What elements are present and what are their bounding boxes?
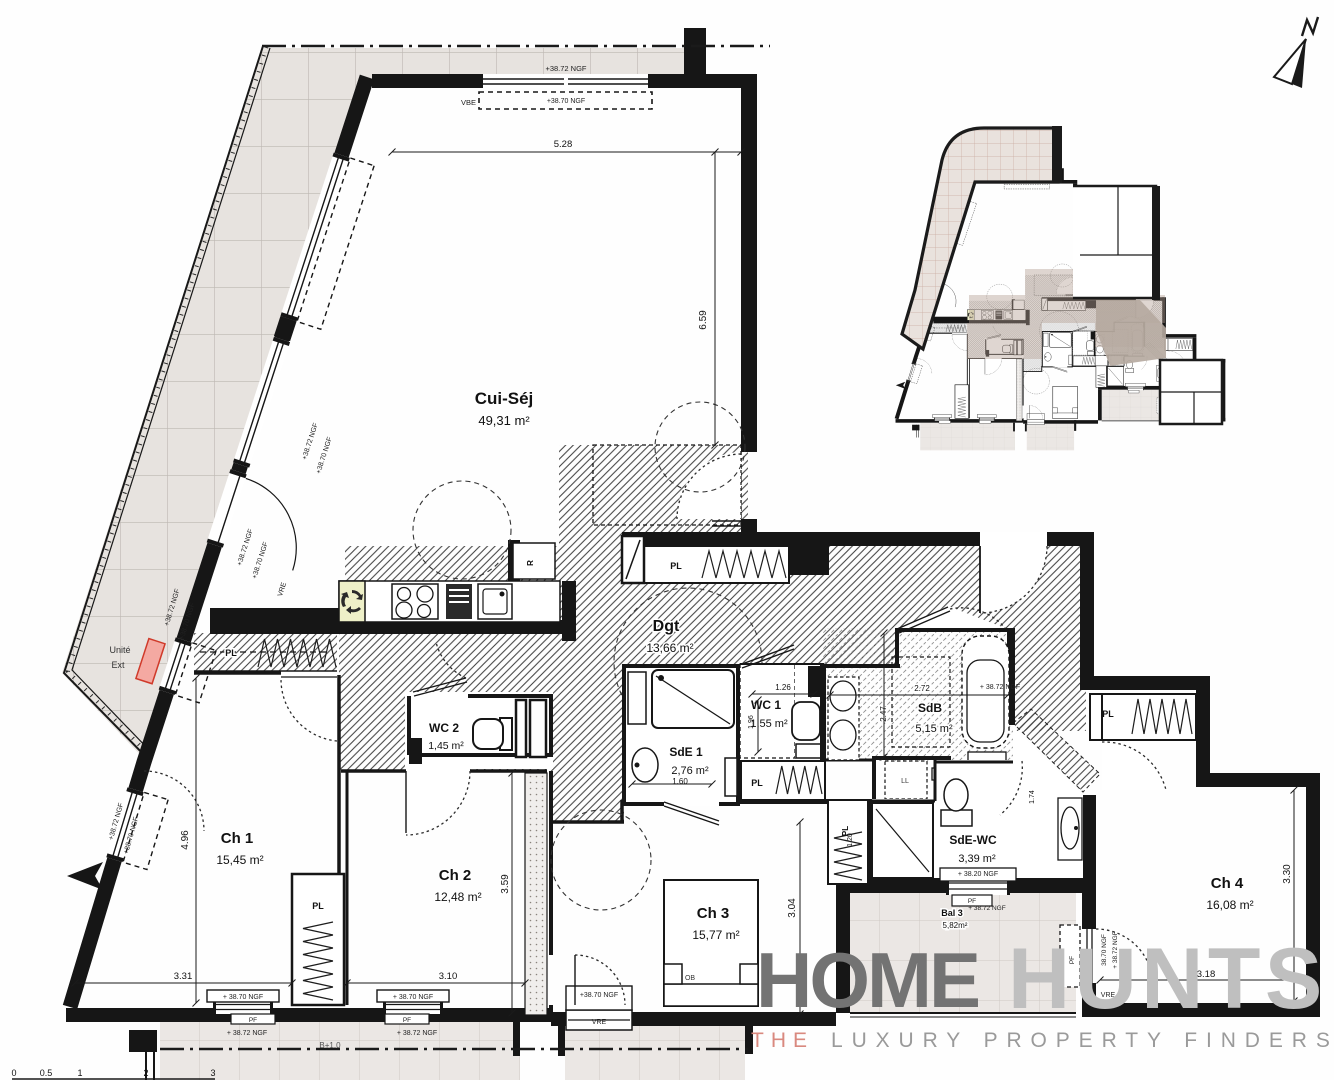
- svg-text:1.20: 1.20: [847, 833, 854, 847]
- svg-text:3.31: 3.31: [174, 971, 193, 982]
- svg-text:Ch 3: Ch 3: [697, 905, 730, 922]
- svg-text:1.60: 1.60: [672, 777, 688, 786]
- svg-text:PL: PL: [225, 648, 237, 658]
- svg-text:+ 38.70 NGF: + 38.70 NGF: [393, 994, 433, 1001]
- svg-text:13,66 m²: 13,66 m²: [646, 641, 693, 655]
- svg-text:R: R: [526, 560, 535, 566]
- svg-text:4.96: 4.96: [180, 830, 191, 850]
- svg-text:12,48 m²: 12,48 m²: [434, 890, 481, 904]
- svg-text:Unité: Unité: [109, 645, 130, 655]
- svg-text:PF: PF: [403, 1017, 411, 1024]
- svg-text:5.28: 5.28: [554, 139, 573, 150]
- svg-text:OB: OB: [685, 975, 695, 982]
- svg-text:SdB: SdB: [918, 701, 942, 715]
- svg-text:WC 2: WC 2: [429, 721, 459, 735]
- svg-text:PF: PF: [968, 898, 976, 905]
- svg-text:1: 1: [77, 1068, 82, 1078]
- svg-text:3,39 m²: 3,39 m²: [958, 853, 996, 865]
- svg-text:1.96: 1.96: [748, 715, 755, 729]
- svg-text:LUXURY PROPERTY FINDERS: LUXURY PROPERTY FINDERS: [831, 1029, 1334, 1052]
- svg-text:SdE 1: SdE 1: [669, 745, 703, 759]
- svg-text:1,55 m²: 1,55 m²: [750, 718, 788, 730]
- svg-text:15,45 m²: 15,45 m²: [216, 853, 263, 867]
- svg-text:15,77 m²: 15,77 m²: [692, 928, 739, 942]
- svg-text:PL: PL: [1102, 709, 1114, 719]
- svg-text:+38.72 NGF: +38.72 NGF: [545, 64, 586, 73]
- svg-text:HOME: HOME: [756, 936, 978, 1024]
- svg-text:Ch 2: Ch 2: [439, 867, 472, 884]
- svg-text:VRE: VRE: [592, 1019, 607, 1026]
- svg-text:1,45 m²: 1,45 m²: [428, 740, 464, 752]
- svg-text:PL: PL: [670, 561, 682, 571]
- svg-text:3.59: 3.59: [500, 874, 511, 894]
- svg-text:Ch 1: Ch 1: [221, 830, 254, 847]
- svg-text:+38.70 NGF: +38.70 NGF: [547, 98, 585, 105]
- svg-text:+ 38.70 NGF: + 38.70 NGF: [223, 994, 263, 1001]
- svg-text:5,82m²: 5,82m²: [943, 921, 968, 930]
- svg-text:Cui-Séj: Cui-Séj: [475, 389, 534, 408]
- svg-text:Ch 4: Ch 4: [1211, 875, 1244, 892]
- svg-text:+ 38.72 NGF: + 38.72 NGF: [980, 684, 1020, 691]
- svg-text:Ext: Ext: [111, 660, 125, 670]
- svg-text:6.59: 6.59: [698, 310, 709, 330]
- svg-text:5,15 m²: 5,15 m²: [915, 723, 953, 735]
- svg-text:3.10: 3.10: [439, 971, 458, 982]
- svg-text:2,76 m²: 2,76 m²: [671, 765, 709, 777]
- svg-text:PF: PF: [249, 1017, 257, 1024]
- svg-text:VBE: VBE: [461, 98, 476, 107]
- svg-text:1.26: 1.26: [775, 683, 791, 692]
- svg-text:16,08 m²: 16,08 m²: [1206, 898, 1253, 912]
- svg-text:+38.70 NGF: +38.70 NGF: [580, 992, 618, 999]
- svg-text:3: 3: [210, 1068, 215, 1078]
- svg-text:1.74: 1.74: [1029, 790, 1036, 804]
- svg-text:2.72: 2.72: [914, 684, 930, 693]
- svg-text:Dgt: Dgt: [653, 618, 680, 635]
- svg-text:2: 2: [143, 1068, 148, 1078]
- svg-text:SdE-WC: SdE-WC: [949, 833, 997, 847]
- svg-text:+ 38.20 NGF: + 38.20 NGF: [958, 871, 998, 878]
- svg-text:0.5: 0.5: [40, 1068, 53, 1078]
- svg-text:+ 38.72 NGF: + 38.72 NGF: [397, 1030, 437, 1037]
- svg-text:49,31 m²: 49,31 m²: [478, 413, 530, 428]
- svg-text:HUNTS: HUNTS: [1008, 931, 1327, 1027]
- svg-text:3.04: 3.04: [787, 898, 798, 918]
- svg-text:THE: THE: [751, 1029, 814, 1052]
- svg-text:+ 38.72 NGF: + 38.72 NGF: [227, 1030, 267, 1037]
- svg-text:0: 0: [11, 1068, 16, 1078]
- svg-text:Bal 3: Bal 3: [941, 908, 963, 918]
- svg-text:LL: LL: [901, 778, 909, 785]
- svg-text:PL: PL: [312, 901, 324, 911]
- svg-text:+ 38.72 NGF: + 38.72 NGF: [968, 905, 1005, 912]
- svg-text:PL: PL: [751, 778, 763, 788]
- svg-text:WC 1: WC 1: [751, 698, 781, 712]
- svg-text:3.30: 3.30: [1282, 864, 1293, 884]
